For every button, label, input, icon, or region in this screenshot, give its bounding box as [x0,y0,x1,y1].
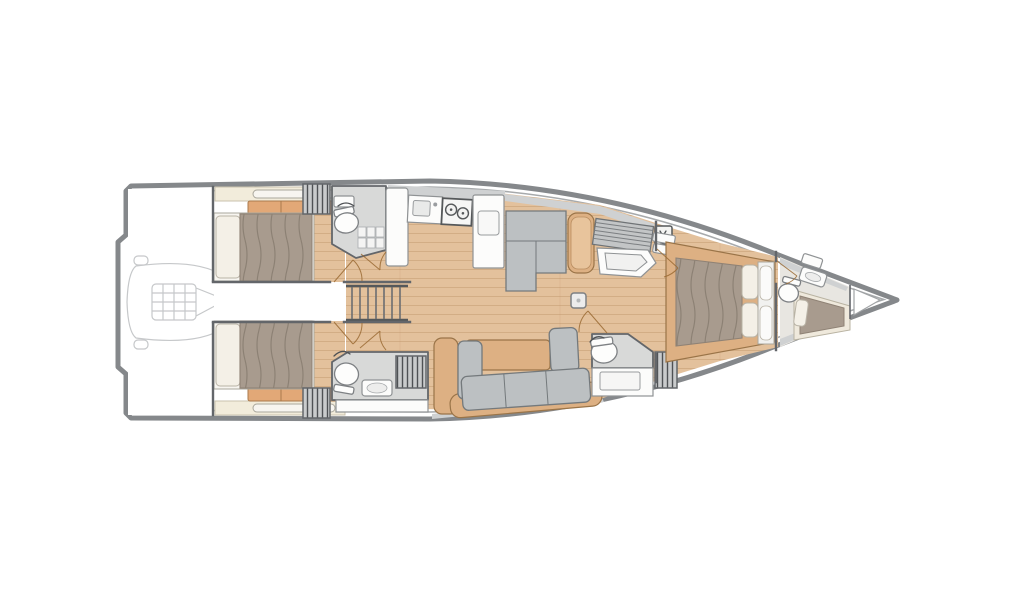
aft-head-port [332,186,386,258]
aft-cabin-port [214,184,345,282]
wardrobe [303,388,330,418]
duvet [240,321,312,388]
pillow [742,303,758,337]
fridge-door [478,211,499,235]
duvet [676,258,742,346]
duvet [240,214,312,281]
floorplan-svg [0,0,1024,600]
aft-head-starboard [331,351,428,412]
double-bed [214,213,314,281]
aft-cabin-starboard [214,321,345,418]
boat-floorplan [0,0,1024,600]
bow-compartment [776,253,880,347]
stairs-icon [352,287,400,319]
galley-counter [386,188,408,266]
sink-unit [407,195,442,224]
vanity [336,400,428,412]
engine-room-space [214,283,344,321]
pillows [216,324,240,386]
shower-door-icon [396,356,426,388]
sink-icon [600,372,640,390]
mast-post-icon [571,293,586,308]
stove-icon [441,198,472,226]
back-cushion-right [549,327,579,372]
wardrobe [303,184,330,214]
sink-icon [413,200,431,216]
sink-icon [334,196,354,207]
double-bed [214,321,314,389]
pillows [216,216,240,278]
pillow [742,265,758,299]
